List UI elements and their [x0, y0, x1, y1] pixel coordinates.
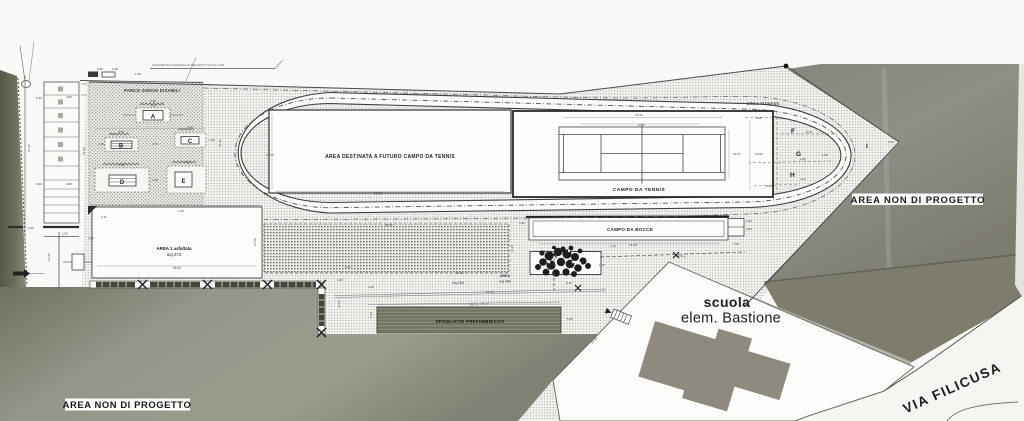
- svg-text:4.11: 4.11: [101, 215, 107, 219]
- svg-text:4.40: 4.40: [187, 126, 193, 130]
- svg-text:4.40: 4.40: [368, 285, 374, 289]
- svg-text:2.30: 2.30: [766, 184, 772, 188]
- svg-text:6.40: 6.40: [345, 265, 351, 269]
- svg-text:5.30: 5.30: [567, 317, 573, 321]
- svg-text:14.50: 14.50: [253, 238, 257, 246]
- svg-text:1.30: 1.30: [209, 138, 215, 142]
- svg-text:12.36: 12.36: [47, 253, 51, 261]
- svg-text:16.80: 16.80: [755, 152, 763, 156]
- svg-text:D: D: [120, 180, 125, 186]
- svg-text:AREA DESTINATA A FUTURO CAMPO: AREA DESTINATA A FUTURO CAMPO DA TENNIS: [325, 154, 455, 160]
- svg-text:CAMPO DA BOCCE: CAMPO DA BOCCE: [607, 227, 653, 232]
- svg-text:1.70: 1.70: [599, 263, 605, 267]
- svg-text:elem. Bastione: elem. Bastione: [681, 311, 781, 327]
- svg-text:0.70: 0.70: [152, 142, 158, 146]
- svg-text:AREA 1 asfaltata: AREA 1 asfaltata: [157, 246, 193, 251]
- svg-text:2.20: 2.20: [800, 177, 806, 181]
- svg-text:mq 273: mq 273: [167, 252, 182, 257]
- svg-text:SPOGLIATOI PREFABBRICATI: SPOGLIATOI PREFABBRICATI: [435, 319, 504, 324]
- svg-text:1.40: 1.40: [152, 178, 158, 182]
- svg-text:AREA NON DI PROGETTO: AREA NON DI PROGETTO: [851, 194, 986, 205]
- svg-text:21.26: 21.26: [456, 271, 464, 275]
- svg-text:2.30: 2.30: [150, 99, 156, 103]
- svg-text:8.70: 8.70: [566, 281, 572, 285]
- svg-text:mq 366: mq 366: [499, 280, 510, 284]
- svg-text:1.30: 1.30: [98, 142, 104, 146]
- svg-text:AREA FITNESS: AREA FITNESS: [747, 101, 780, 106]
- svg-text:27.30: 27.30: [27, 144, 31, 152]
- svg-text:7.50: 7.50: [733, 242, 739, 246]
- svg-text:6.60: 6.60: [28, 226, 34, 230]
- svg-text:26.50: 26.50: [385, 223, 393, 227]
- svg-text:1.50: 1.50: [822, 153, 828, 157]
- svg-text:scuola: scuola: [704, 294, 751, 310]
- svg-text:2.40: 2.40: [337, 278, 343, 282]
- svg-text:H: H: [790, 172, 795, 179]
- svg-text:11.26: 11.26: [510, 244, 514, 252]
- svg-text:4.50: 4.50: [36, 182, 42, 186]
- svg-text:14.50: 14.50: [266, 153, 274, 157]
- svg-text:4.80: 4.80: [66, 95, 72, 99]
- svg-text:36.50: 36.50: [374, 192, 382, 196]
- svg-text:6.41: 6.41: [888, 140, 894, 144]
- svg-text:E: E: [181, 179, 185, 185]
- svg-text:2.30: 2.30: [178, 209, 184, 213]
- svg-text:1.50: 1.50: [135, 72, 141, 76]
- svg-text:13.97: 13.97: [733, 152, 741, 156]
- svg-text:PLANIMETRIA GENERALE DI PROGET: PLANIMETRIA GENERALE DI PROGETTO SCALA 1…: [152, 63, 225, 67]
- svg-text:24.00: 24.00: [82, 147, 86, 155]
- svg-text:47.24: 47.24: [218, 139, 222, 147]
- svg-text:AREA: AREA: [500, 274, 511, 278]
- svg-text:4.96: 4.96: [524, 195, 530, 199]
- svg-text:4.30: 4.30: [746, 227, 752, 231]
- svg-text:1.98: 1.98: [112, 67, 118, 71]
- svg-text:PARCO GIOCHI DISABILI: PARCO GIOCHI DISABILI: [124, 88, 180, 93]
- svg-text:I: I: [866, 143, 868, 150]
- svg-text:5.30: 5.30: [36, 96, 42, 100]
- svg-text:26.70: 26.70: [481, 302, 489, 306]
- svg-text:2.30: 2.30: [746, 219, 752, 223]
- svg-text:23.76: 23.76: [637, 123, 645, 127]
- svg-text:4.05: 4.05: [88, 236, 94, 240]
- svg-text:2.10: 2.10: [806, 130, 812, 134]
- svg-text:2.20: 2.20: [800, 157, 806, 161]
- svg-text:3.00: 3.00: [756, 116, 762, 120]
- svg-text:B: B: [119, 144, 124, 150]
- svg-text:1.30: 1.30: [150, 104, 156, 108]
- svg-text:5.30: 5.30: [97, 67, 103, 71]
- svg-text:4.40: 4.40: [184, 161, 190, 165]
- svg-text:1.50: 1.50: [62, 232, 68, 236]
- svg-text:CAMPO DA TENNIS: CAMPO DA TENNIS: [613, 187, 666, 193]
- svg-text:A: A: [151, 114, 156, 121]
- svg-text:4.80: 4.80: [66, 182, 72, 186]
- svg-text:mq 266: mq 266: [452, 281, 463, 285]
- svg-text:47.20: 47.20: [635, 113, 643, 117]
- svg-text:4.40: 4.40: [119, 163, 125, 167]
- svg-text:34.00: 34.00: [173, 266, 181, 270]
- svg-text:13.26: 13.26: [337, 300, 341, 308]
- svg-text:6.40: 6.40: [369, 312, 373, 318]
- svg-text:C: C: [188, 139, 193, 145]
- svg-text:AREA NON DI PROGETTO: AREA NON DI PROGETTO: [63, 399, 192, 410]
- svg-text:7.40: 7.40: [610, 244, 616, 248]
- svg-text:4.50: 4.50: [118, 130, 124, 134]
- svg-text:3.00: 3.00: [519, 221, 525, 225]
